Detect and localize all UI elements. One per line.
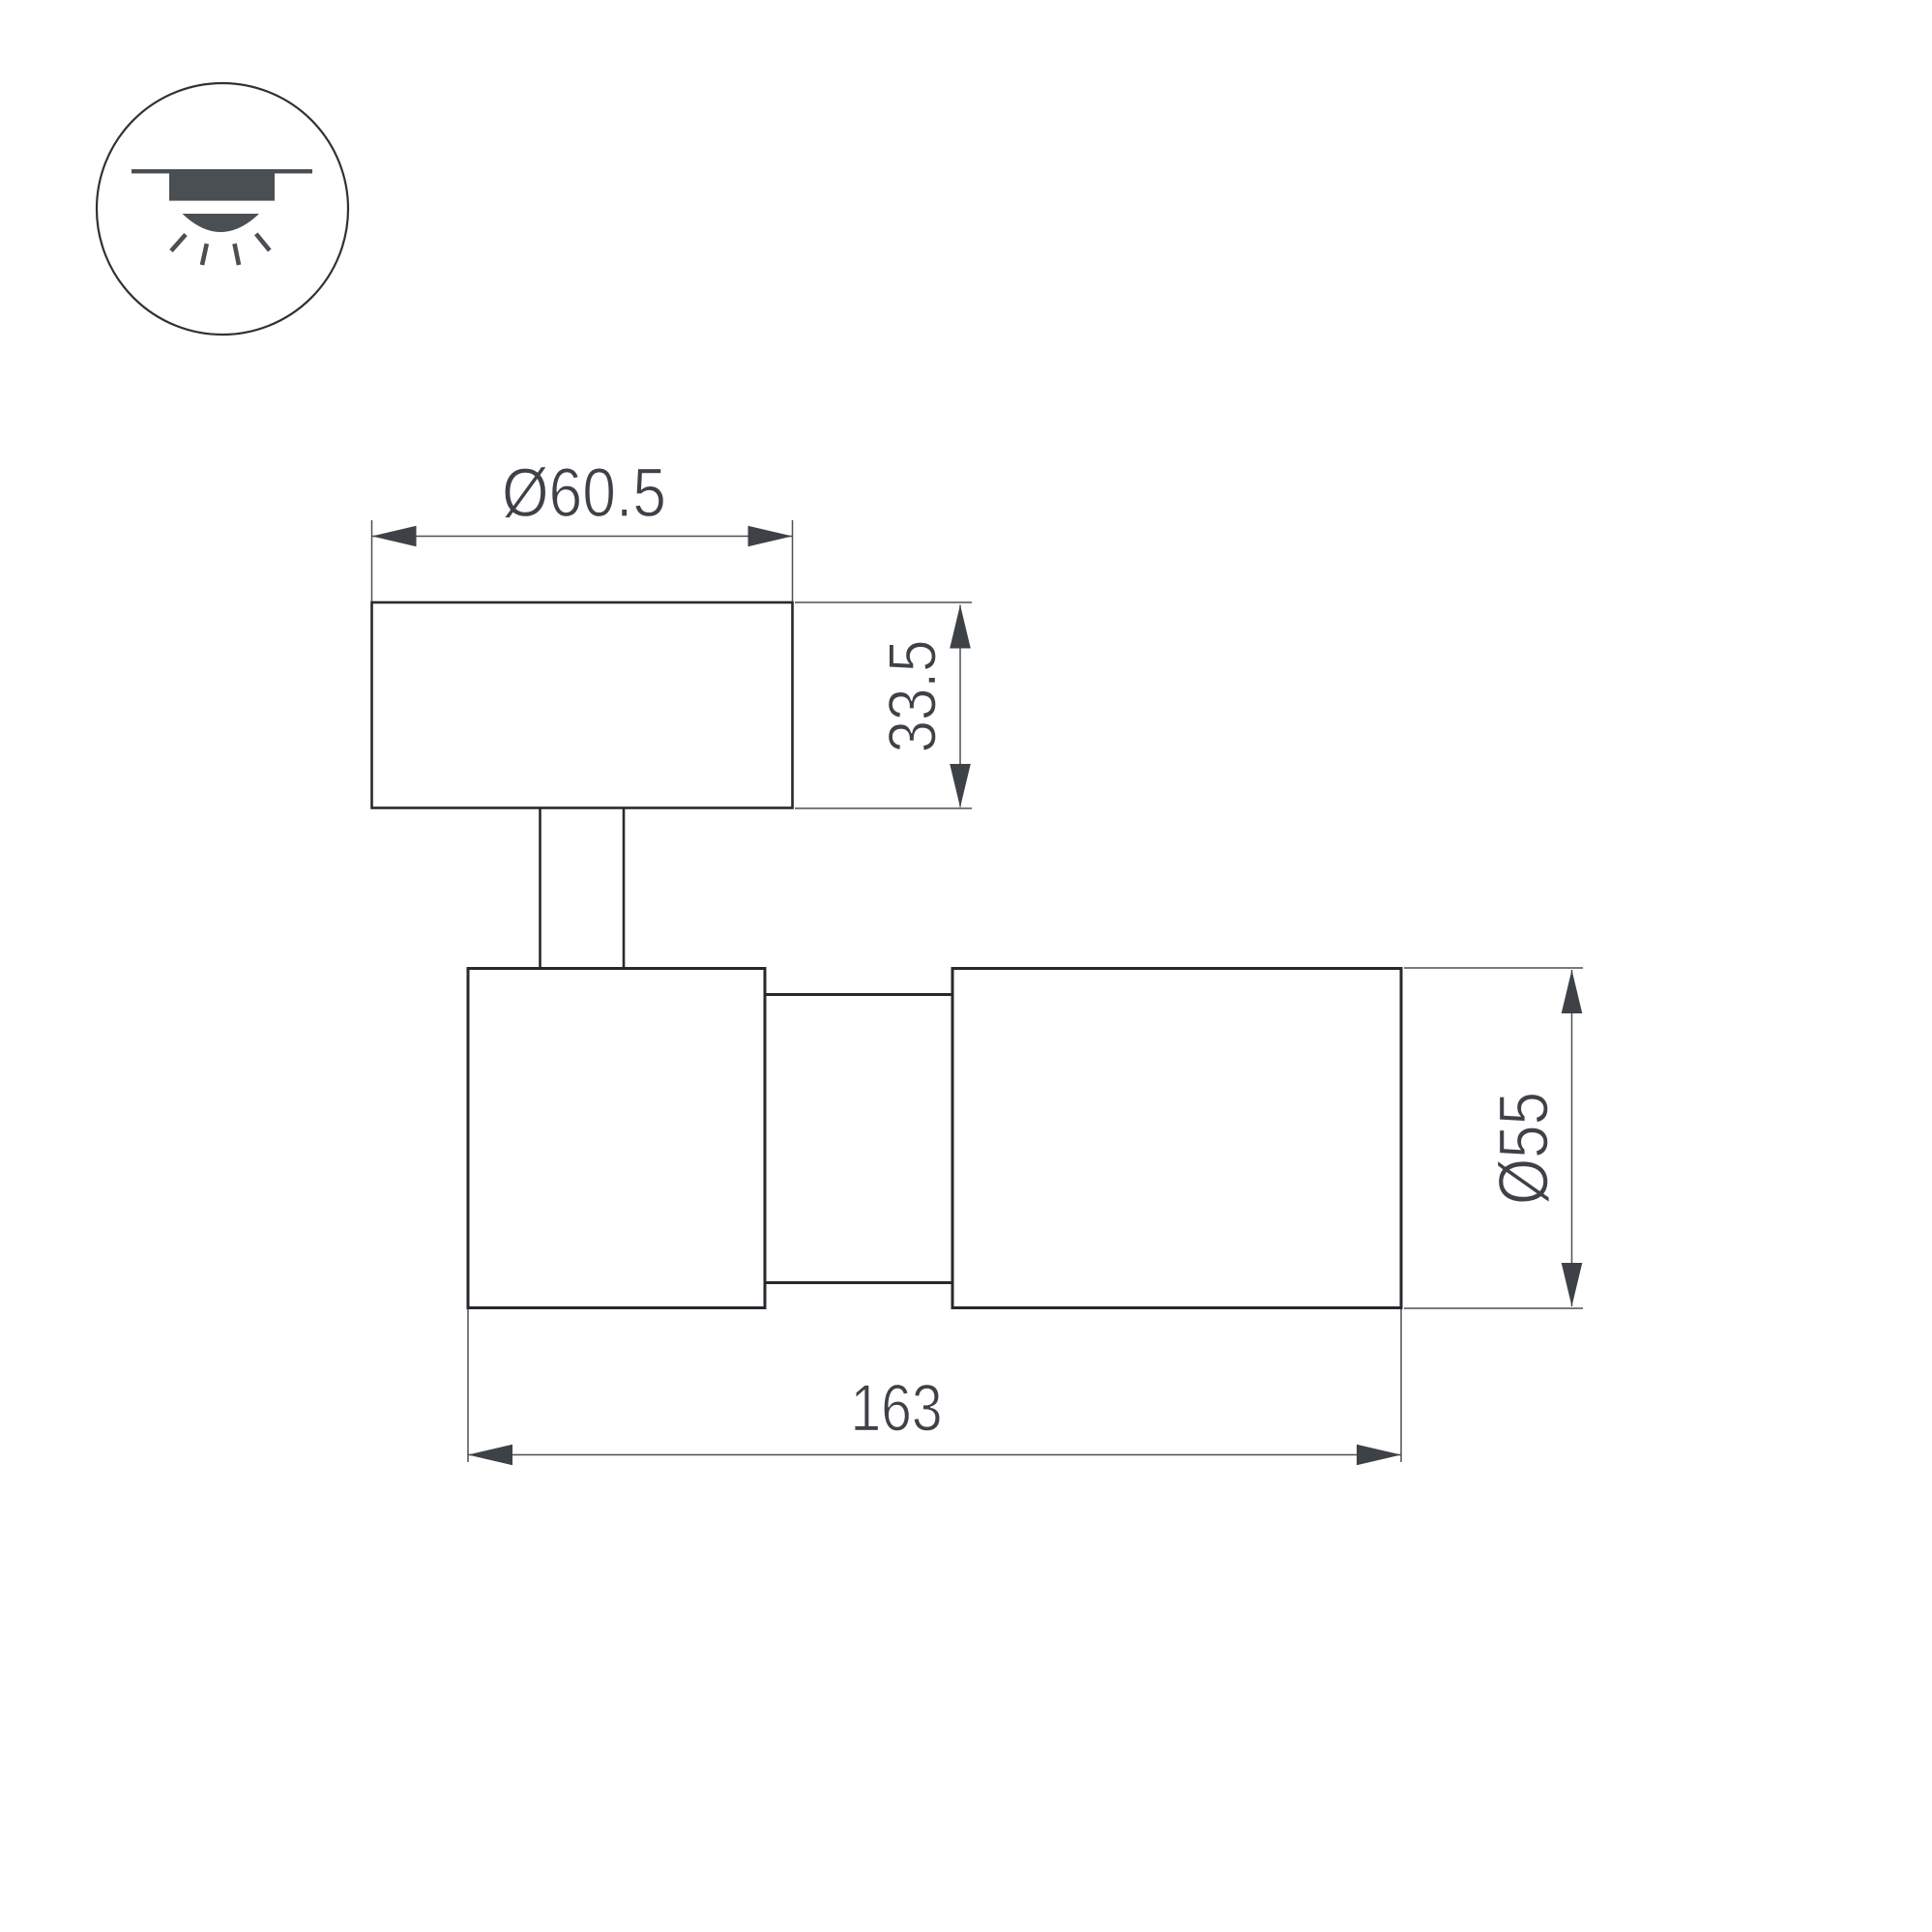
svg-text:Ø55: Ø55 xyxy=(1486,1092,1564,1205)
svg-text:33.5: 33.5 xyxy=(875,640,951,753)
svg-text:163: 163 xyxy=(851,1371,943,1446)
svg-text:Ø60.5: Ø60.5 xyxy=(502,455,666,532)
